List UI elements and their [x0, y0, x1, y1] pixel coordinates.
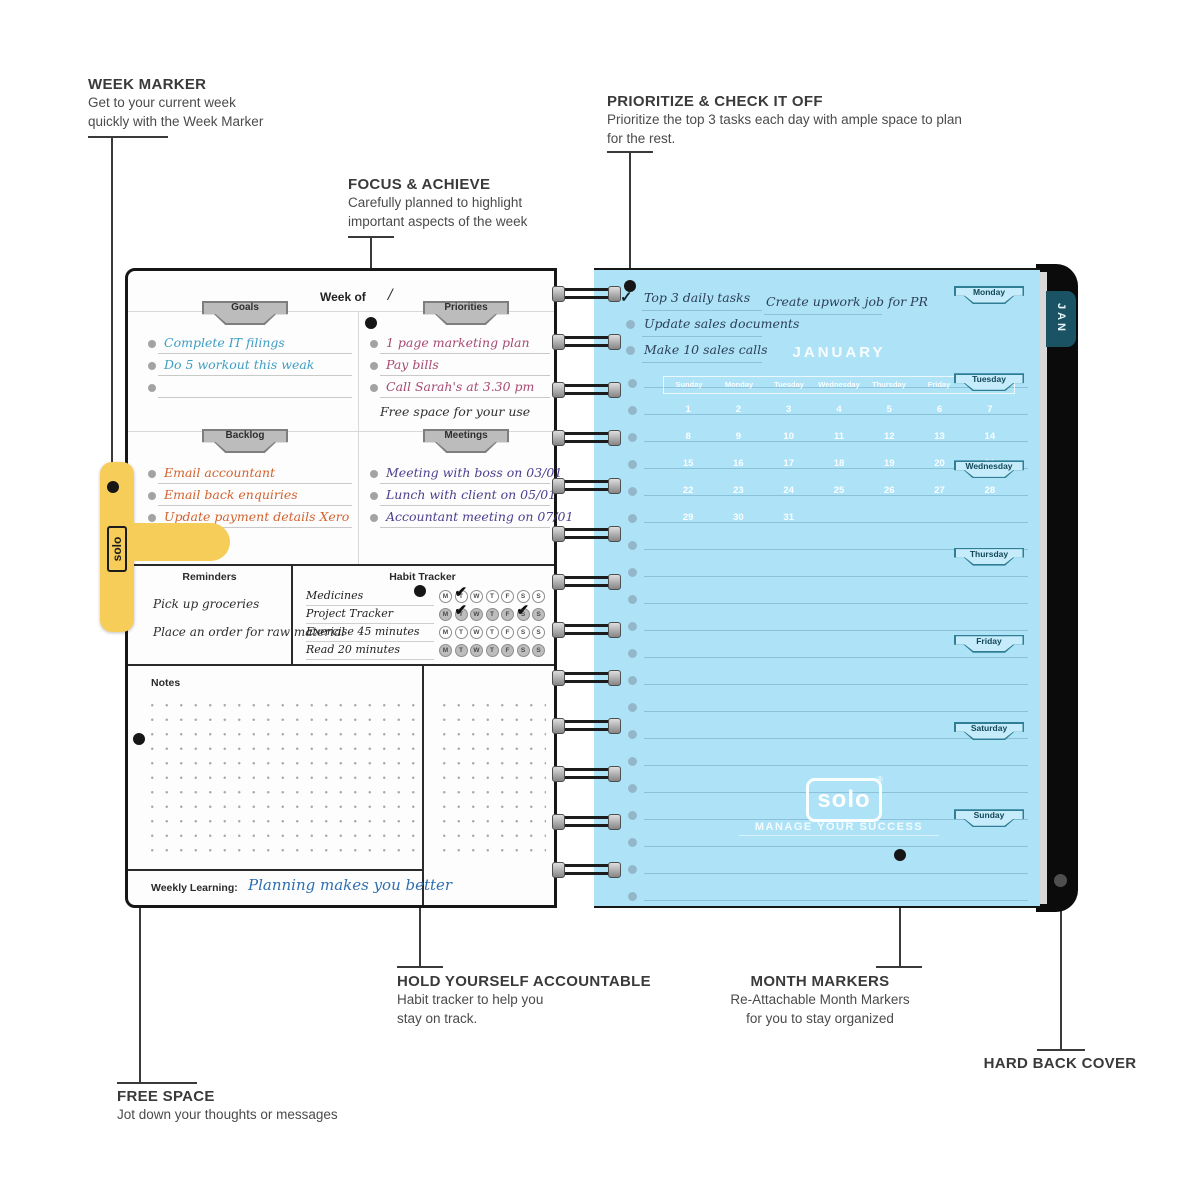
spiral-pad	[552, 286, 565, 302]
spiral-pad	[608, 382, 621, 398]
calendar-day-header: Tuesday	[764, 377, 814, 393]
spiral-pad	[608, 574, 621, 590]
empty-task-row	[594, 670, 1040, 694]
habit-day-circle: W	[470, 608, 483, 621]
bullet-icon	[628, 406, 637, 415]
write-line	[306, 659, 434, 660]
month-marker-tab-friday: Friday	[954, 635, 1024, 653]
spiral-wire	[558, 488, 614, 491]
habit-day-circle: F	[501, 590, 514, 603]
write-line	[380, 505, 550, 506]
write-line	[158, 505, 352, 506]
habit-name: Medicines	[306, 589, 363, 602]
habit-day-circle: T	[455, 626, 468, 639]
spiral-loop	[552, 382, 624, 398]
spiral-loop	[552, 286, 624, 302]
calendar-date-cell: 22	[663, 477, 713, 504]
spiral-wire	[558, 576, 614, 579]
habit-day-circle: T	[486, 608, 499, 621]
weekly-learning-label: Weekly Learning:	[151, 882, 238, 894]
write-line	[644, 603, 1028, 604]
calendar-date-cell: 1	[663, 396, 713, 423]
week-marker-solo-logo: solo	[107, 526, 127, 572]
calendar-date-cell: 16	[713, 450, 763, 477]
habit-tracker-label: Habit Tracker	[291, 571, 554, 583]
item-text: Do 5 workout this weak	[164, 357, 314, 372]
callout-month-markers: MONTH MARKERS Re-Attachable Month Marker…	[655, 973, 985, 1028]
empty-task-row	[594, 562, 1040, 586]
section-ribbon-priorities: Priorities	[423, 301, 509, 325]
tab-label: Thursday	[954, 549, 1024, 559]
rule	[422, 664, 424, 905]
spiral-pad	[552, 670, 565, 686]
list-item: Complete IT filings	[146, 335, 354, 357]
item-text: Update payment details Xero	[164, 509, 349, 524]
habit-name: Exercise 45 minutes	[306, 625, 420, 638]
spiral-pad	[608, 670, 621, 686]
spiral-loop	[552, 622, 624, 638]
month-marker-tab-monday: Monday	[954, 286, 1024, 304]
habit-row: Exercise 45 minutesMTWTFSS	[306, 625, 554, 643]
notes-label: Notes	[151, 677, 180, 689]
calendar-date-cell: 2	[713, 396, 763, 423]
bullet-icon	[628, 595, 637, 604]
week-of-value: /	[388, 287, 393, 303]
connector-free-space	[117, 1082, 197, 1084]
bullet-icon	[626, 346, 635, 355]
month-marker-tab-tuesday: Tuesday	[954, 373, 1024, 391]
tab-label: Tuesday	[954, 374, 1024, 384]
spiral-wire	[558, 344, 614, 347]
calendar-date-cell	[814, 504, 864, 531]
habit-day-circle: M	[439, 644, 452, 657]
connector-month-markers	[876, 966, 922, 968]
connector-week-marker	[111, 136, 113, 488]
calendar-day-header: Monday	[714, 377, 764, 393]
item-text: Call Sarah's at 3.30 pm	[386, 379, 534, 394]
list-item: Meeting with boss on 03/01	[368, 465, 552, 487]
rule	[128, 564, 554, 566]
habit-day-circle: M	[439, 626, 452, 639]
empty-task-row	[594, 589, 1040, 613]
bullet-icon	[628, 514, 637, 523]
bullet-icon	[628, 784, 637, 793]
bullet-icon	[370, 492, 378, 500]
bullet-icon	[370, 340, 378, 348]
calendar-date-cell: 28	[965, 477, 1015, 504]
item-text: Pay bills	[386, 357, 439, 372]
write-line	[380, 397, 550, 398]
empty-task-row	[594, 697, 1040, 721]
calendar-date-cell: 17	[764, 450, 814, 477]
calendar-date-cell: 8	[663, 423, 713, 450]
habit-day-circle: F	[501, 608, 514, 621]
spiral-loop	[552, 526, 624, 542]
bullet-icon	[148, 492, 156, 500]
habit-day-circle: M	[439, 590, 452, 603]
week-of-label: Week of	[320, 290, 366, 304]
calendar-date-cell: 24	[764, 477, 814, 504]
spiral-wire	[558, 768, 614, 771]
spiral-pad	[552, 766, 565, 782]
tab-label: Friday	[954, 636, 1024, 646]
habit-day-circle: S	[532, 626, 545, 639]
item-text: Lunch with client on 05/01	[386, 487, 556, 502]
left-page-weekly: Week of / Goals Priorities Backlog Meeti…	[125, 268, 557, 908]
bullet-icon	[628, 757, 637, 766]
write-line	[306, 623, 434, 624]
notes-dot-grid	[142, 695, 420, 863]
calendar-date-cell: 23	[713, 477, 763, 504]
solo-logo: solo ®	[806, 778, 882, 822]
spiral-wire	[558, 528, 614, 531]
goals-list: Complete IT filingsDo 5 workout this wea…	[146, 335, 354, 401]
spiral-wire	[558, 440, 614, 443]
bullet-icon	[628, 622, 637, 631]
calendar-date-cell: 7	[965, 396, 1015, 423]
habit-day-circle: T	[455, 644, 468, 657]
month-marker-tab-thursday: Thursday	[954, 548, 1024, 566]
calendar-date-cell: 9	[713, 423, 763, 450]
connector-dot	[1054, 874, 1067, 887]
callout-free-space: FREE SPACE Jot down your thoughts or mes…	[117, 1088, 338, 1124]
spiral-wire	[558, 296, 614, 299]
connector-prioritize	[629, 151, 631, 286]
bullet-icon	[628, 460, 637, 469]
backlog-list: Email accountantEmail back enquiriesUpda…	[146, 465, 354, 531]
item-text: 1 page marketing plan	[386, 335, 530, 350]
tab-label: Sunday	[954, 810, 1024, 820]
bullet-icon	[370, 362, 378, 370]
month-marker-tab-saturday: Saturday	[954, 722, 1024, 740]
list-item: Email accountant	[146, 465, 354, 487]
bullet-icon	[148, 340, 156, 348]
spiral-pad	[552, 334, 565, 350]
spiral-pad	[608, 526, 621, 542]
spiral-pad	[552, 718, 565, 734]
calendar-date-cell: 19	[864, 450, 914, 477]
calendar-date-cell: 3	[764, 396, 814, 423]
spiral-pad	[608, 766, 621, 782]
bullet-icon	[628, 433, 637, 442]
bullet-icon	[148, 470, 156, 478]
check-icon: ✔	[517, 601, 530, 619]
calendar-date-cell: 29	[663, 504, 713, 531]
tab-label: Wednesday	[954, 461, 1024, 471]
rule	[128, 664, 554, 666]
tab-label: Saturday	[954, 723, 1024, 733]
connector-dot	[414, 585, 426, 597]
list-item: Accountant meeting on 07/01	[368, 509, 552, 531]
habit-day-circle: T	[486, 644, 499, 657]
write-line	[158, 375, 352, 376]
check-icon: ✔	[455, 583, 468, 601]
spiral-wire	[558, 816, 614, 819]
habit-day-circle: W	[470, 644, 483, 657]
list-item: Email back enquiries	[146, 487, 354, 509]
callout-hard-back: HARD BACK COVER	[960, 1055, 1160, 1072]
connector-dot	[624, 280, 636, 292]
side-note: Create upwork job for PR	[766, 294, 928, 309]
spiral-pad	[552, 382, 565, 398]
bullet-icon	[370, 384, 378, 392]
bullet-icon	[628, 649, 637, 658]
spiral-wire	[558, 624, 614, 627]
spiral-loop	[552, 766, 624, 782]
empty-task-row	[594, 859, 1040, 883]
spiral-wire	[558, 392, 614, 395]
bullet-icon	[148, 514, 156, 522]
rule	[358, 311, 359, 564]
calendar-date-cell: 31	[764, 504, 814, 531]
spiral-pad	[608, 286, 621, 302]
spiral-wire	[558, 720, 614, 723]
calendar-date-cell: 10	[764, 423, 814, 450]
calendar-date-cell: 13	[914, 423, 964, 450]
write-line	[642, 362, 762, 363]
month-marker-tab-wednesday: Wednesday	[954, 460, 1024, 478]
connector-dot	[365, 317, 377, 329]
bullet-icon	[628, 892, 637, 901]
habit-row: Read 20 minutesMTWTFSS	[306, 643, 554, 661]
calendar-date-cell	[914, 504, 964, 531]
side-note-line	[764, 314, 882, 315]
calendar-date-cell: 12	[864, 423, 914, 450]
list-item: Lunch with client on 05/01	[368, 487, 552, 509]
calendar-date-cell	[864, 504, 914, 531]
callout-title: WEEK MARKER	[88, 76, 263, 93]
bullet-icon	[628, 703, 637, 712]
section-ribbon-backlog: Backlog	[202, 429, 288, 453]
callout-prioritize: PRIORITIZE & CHECK IT OFF Prioritize the…	[607, 93, 962, 148]
spiral-loop	[552, 862, 624, 878]
spiral-pad	[608, 478, 621, 494]
habit-day-circle: S	[517, 644, 530, 657]
calendar-day-header: Thursday	[864, 377, 914, 393]
list-item	[146, 379, 354, 401]
callout-focus-achieve: FOCUS & ACHIEVE Carefully planned to hig…	[348, 176, 527, 231]
spiral-wire	[558, 728, 614, 731]
calendar-date-cell: 6	[914, 396, 964, 423]
right-page-monthly: ✓Top 3 daily tasksUpdate sales documents…	[594, 268, 1040, 908]
write-line	[380, 483, 550, 484]
spiral-pad	[608, 814, 621, 830]
write-line	[306, 605, 434, 606]
calendar-date-cell: 18	[814, 450, 864, 477]
habit-day-circle: W	[470, 590, 483, 603]
side-dot-grid	[434, 695, 546, 863]
spiral-wire	[558, 288, 614, 291]
spiral-wire	[558, 584, 614, 587]
spiral-wire	[558, 672, 614, 675]
bullet-icon	[628, 568, 637, 577]
spiral-pad	[552, 862, 565, 878]
brand-tagline: MANAGE YOUR SUCCESS	[739, 821, 939, 836]
write-line	[642, 336, 762, 337]
write-line	[644, 846, 1028, 847]
habit-name: Project Tracker	[306, 607, 393, 620]
item-text: Meeting with boss on 03/01	[386, 465, 562, 480]
spiral-loop	[552, 718, 624, 734]
spiral-loop	[552, 670, 624, 686]
write-line	[644, 630, 1028, 631]
spiral-pad	[552, 622, 565, 638]
task-row: Update sales documents	[594, 312, 1040, 336]
write-line	[380, 353, 550, 354]
connector-accountable	[397, 966, 443, 968]
item-text: Email back enquiries	[164, 487, 298, 502]
spiral-pad	[552, 526, 565, 542]
spiral-pad	[608, 718, 621, 734]
spiral-wire	[558, 632, 614, 635]
spiral-pad	[552, 574, 565, 590]
bullet-icon	[628, 487, 637, 496]
habit-day-circle: S	[517, 626, 530, 639]
habit-day-circle: S	[532, 644, 545, 657]
spiral-loop	[552, 334, 624, 350]
section-ribbon-goals: Goals	[202, 301, 288, 325]
write-line	[158, 397, 352, 398]
list-item: Pay bills	[368, 357, 552, 379]
calendar-date-cell: 15	[663, 450, 713, 477]
connector-week-marker	[88, 136, 168, 138]
calendar-day-header: Sunday	[664, 377, 714, 393]
spiral-wire	[558, 776, 614, 779]
connector-dot	[133, 733, 145, 745]
empty-task-row	[594, 751, 1040, 775]
write-line	[644, 873, 1028, 874]
calendar-date-cell: 25	[814, 477, 864, 504]
spiral-wire	[558, 536, 614, 539]
calendar-date-cell: 14	[965, 423, 1015, 450]
calendar-date-cell: 30	[713, 504, 763, 531]
spiral-wire	[558, 680, 614, 683]
spiral-loop	[552, 814, 624, 830]
spiral-loop	[552, 478, 624, 494]
spiral-pad	[608, 430, 621, 446]
tab-label: Monday	[954, 287, 1024, 297]
bullet-icon	[370, 470, 378, 478]
habit-day-circle: M	[439, 608, 452, 621]
spiral-loop	[552, 430, 624, 446]
list-item: 1 page marketing plan	[368, 335, 552, 357]
bullet-icon	[148, 362, 156, 370]
spiral-pad	[552, 814, 565, 830]
calendar-date-cell: 27	[914, 477, 964, 504]
write-line	[644, 684, 1028, 685]
callout-accountable: HOLD YOURSELF ACCOUNTABLE Habit tracker …	[397, 973, 651, 1028]
task-text: Top 3 daily tasks	[644, 290, 750, 305]
list-item: Call Sarah's at 3.30 pm	[368, 379, 552, 401]
calendar-date-cell: 11	[814, 423, 864, 450]
write-line	[644, 657, 1028, 658]
bullet-icon	[628, 730, 637, 739]
habit-day-circle: S	[532, 590, 545, 603]
calendar-day-header: Wednesday	[814, 377, 864, 393]
write-line	[644, 765, 1028, 766]
bullet-icon	[628, 379, 637, 388]
habit-day-circle: S	[532, 608, 545, 621]
spiral-wire	[558, 480, 614, 483]
bullet-icon	[626, 320, 635, 329]
spiral-wire	[558, 432, 614, 435]
calendar-date-cell: 4	[814, 396, 864, 423]
habit-day-circle: T	[486, 590, 499, 603]
habit-day-circle: W	[470, 626, 483, 639]
bullet-icon	[628, 676, 637, 685]
spiral-pad	[608, 622, 621, 638]
reminders-label: Reminders	[128, 571, 291, 583]
empty-task-row	[594, 886, 1040, 910]
registered-mark: ®	[877, 775, 883, 784]
calendar-date-cell: 26	[864, 477, 914, 504]
spiral-wire	[558, 336, 614, 339]
bullet-icon	[628, 811, 637, 820]
check-icon: ✔	[455, 601, 468, 619]
write-line	[644, 900, 1028, 901]
write-line	[644, 576, 1028, 577]
spiral-pad	[552, 430, 565, 446]
connector-dot	[107, 481, 119, 493]
item-text: Complete IT filings	[164, 335, 285, 350]
spiral-loop	[552, 574, 624, 590]
item-text: Email accountant	[164, 465, 275, 480]
free-space-note: Free space for your use	[380, 404, 530, 419]
spiral-wire	[558, 864, 614, 867]
spiral-pad	[552, 478, 565, 494]
calendar-date-cell	[965, 504, 1015, 531]
spiral-wire	[558, 384, 614, 387]
meetings-list: Meeting with boss on 03/01Lunch with cli…	[368, 465, 552, 531]
habit-day-circle: F	[501, 644, 514, 657]
write-line	[306, 641, 434, 642]
write-line	[642, 310, 762, 311]
spiral-pad	[608, 862, 621, 878]
write-line	[158, 353, 352, 354]
bullet-icon	[148, 384, 156, 392]
spiral-wire	[558, 824, 614, 827]
bullet-icon	[370, 514, 378, 522]
bullet-icon	[628, 838, 637, 847]
section-ribbon-meetings: Meetings	[423, 429, 509, 453]
list-item: Do 5 workout this weak	[146, 357, 354, 379]
task-text: Update sales documents	[644, 316, 799, 331]
calendar-title: JANUARY	[663, 344, 1015, 361]
month-spine-tab: JAN	[1046, 291, 1076, 347]
calendar-date-cell: 5	[864, 396, 914, 423]
spiral-wire	[558, 872, 614, 875]
habit-day-circle: F	[501, 626, 514, 639]
spiral-pad	[608, 334, 621, 350]
habit-name: Read 20 minutes	[306, 643, 400, 656]
write-line	[158, 483, 352, 484]
write-line	[380, 527, 550, 528]
habit-day-circle: T	[486, 626, 499, 639]
write-line	[644, 711, 1028, 712]
rule	[128, 869, 422, 871]
week-marker-tab	[116, 523, 230, 561]
bullet-icon	[628, 865, 637, 874]
connector-dot	[894, 849, 906, 861]
month-marker-tab-sunday: Sunday	[954, 809, 1024, 827]
callout-week-marker: WEEK MARKER Get to your current week qui…	[88, 76, 263, 131]
item-text: Accountant meeting on 07/01	[386, 509, 573, 524]
habit-row: Project TrackerMTWTFSS✔✔	[306, 607, 554, 625]
planner-feature-diagram: WEEK MARKER Get to your current week qui…	[0, 0, 1200, 1200]
bullet-icon	[628, 541, 637, 550]
weekly-learning-value: Planning makes you better	[248, 876, 452, 894]
connector-hard-back	[1037, 1049, 1085, 1051]
